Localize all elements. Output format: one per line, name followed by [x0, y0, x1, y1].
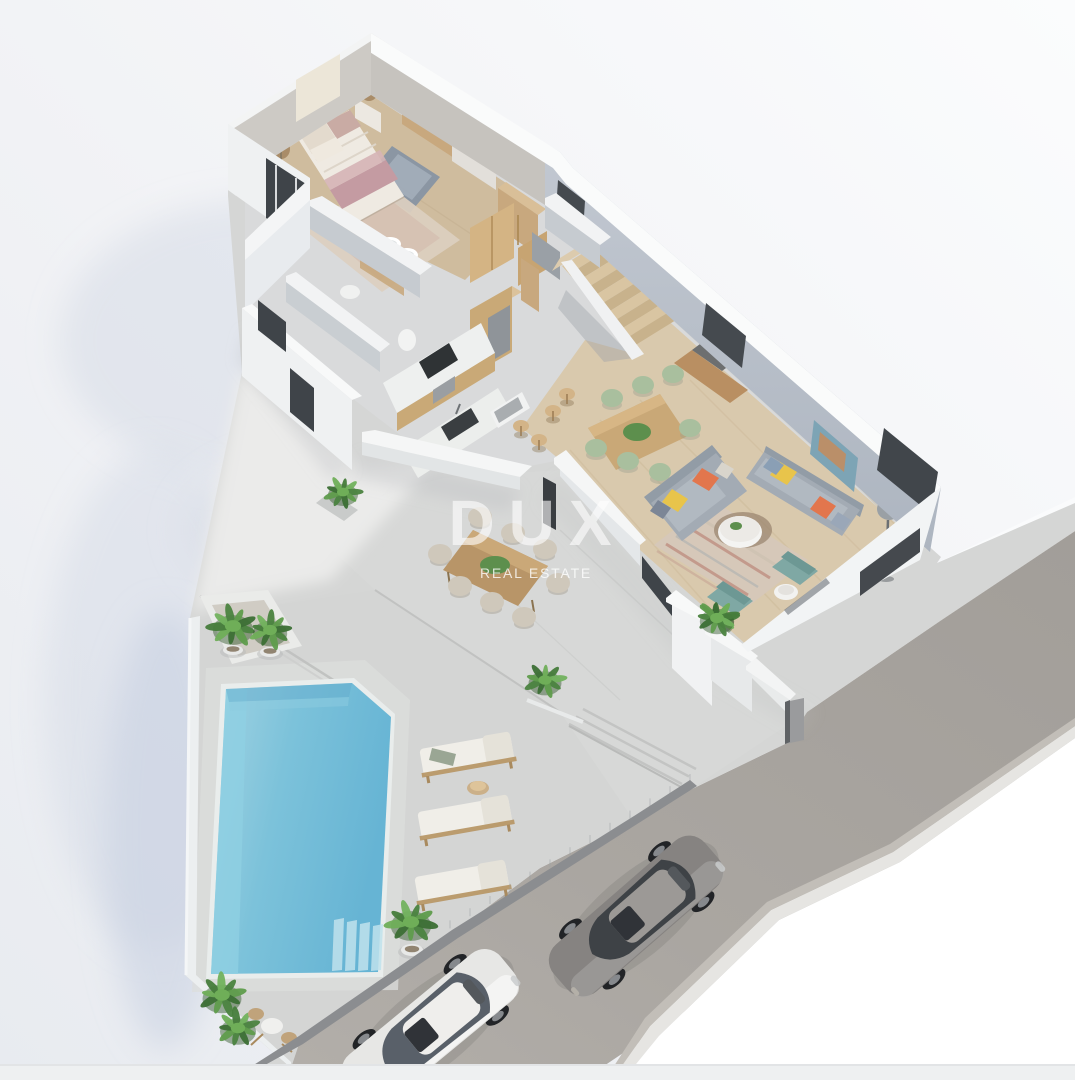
svg-text:REAL ESTATE: REAL ESTATE	[480, 565, 592, 581]
svg-text:DUX: DUX	[448, 487, 625, 559]
